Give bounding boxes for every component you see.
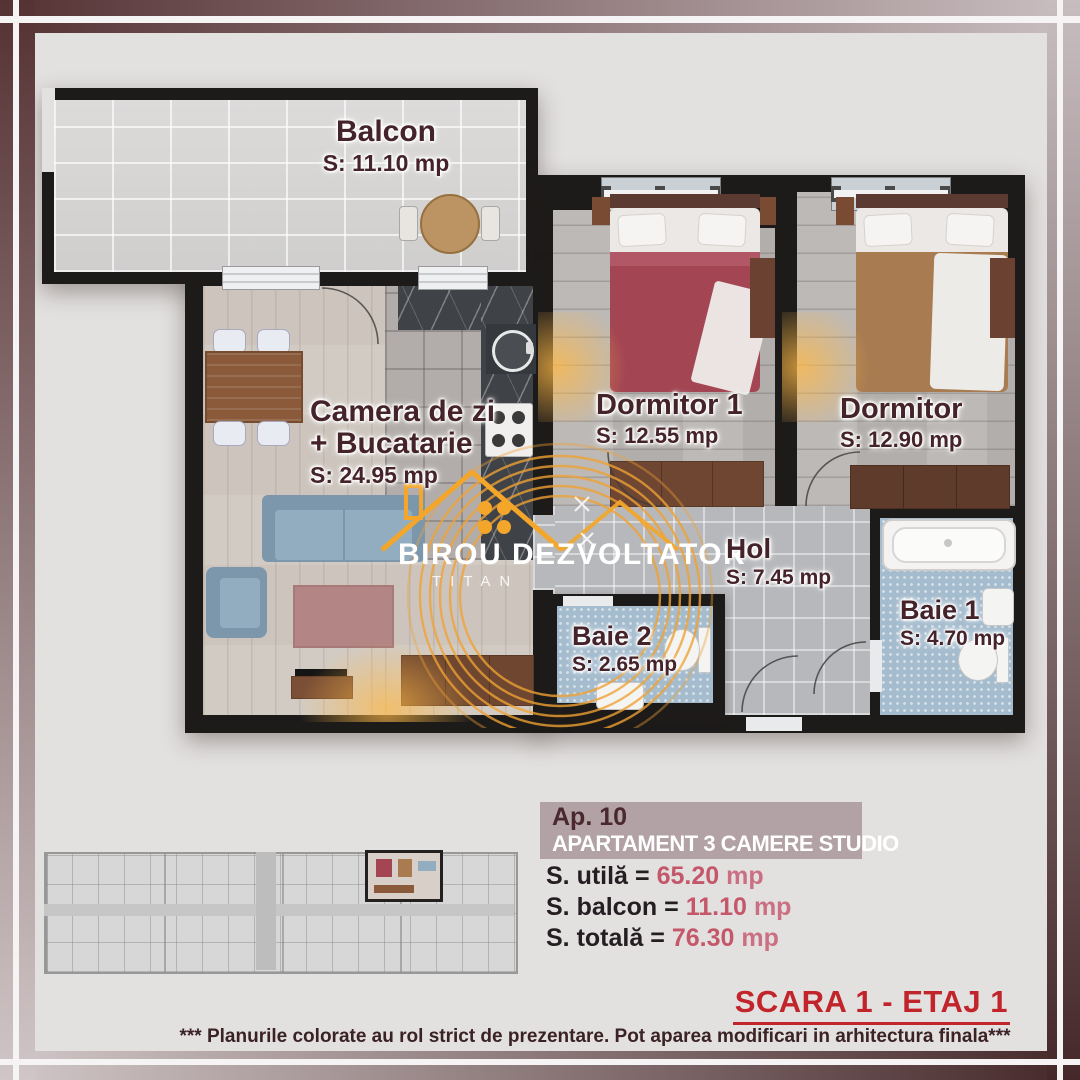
dresser-divider xyxy=(712,462,713,506)
apartment-info-band: Ap. 10 APARTAMENT 3 CAMERE STUDIO xyxy=(540,802,862,859)
overview-corridor xyxy=(44,904,514,916)
bed-dormitor1 xyxy=(610,194,760,392)
balcony-table xyxy=(420,194,480,254)
entrance-door-gap xyxy=(746,717,802,731)
room-area: S: 12.90 mp xyxy=(840,427,1030,453)
bed-dormitor2 xyxy=(856,194,1008,392)
sofa xyxy=(262,495,425,562)
balcony-door-1 xyxy=(222,266,320,290)
pillow xyxy=(863,213,913,247)
room-label-baie2: Baie 2 S: 2.65 mp xyxy=(572,622,722,677)
area-row-utila: S. utilă=65.20mp xyxy=(546,862,764,891)
dresser-divider xyxy=(661,462,662,506)
room-name: Baie 2 xyxy=(572,622,722,651)
room-area: S: 24.95 mp xyxy=(310,462,560,489)
tv-bench xyxy=(291,676,353,699)
room-label-dormitor2: Dormitor S: 12.90 mp xyxy=(840,394,1030,453)
bathroom-sink xyxy=(596,682,644,710)
sink-faucet xyxy=(526,342,533,354)
wardrobe xyxy=(990,258,1015,338)
wardrobe xyxy=(750,258,775,338)
pillow xyxy=(945,213,995,247)
dresser xyxy=(610,461,764,507)
overview-hl-furniture xyxy=(374,885,414,893)
disclaimer-text: *** Planurile colorate au rol strict de … xyxy=(150,1026,1040,1048)
frame-inset-line-left xyxy=(13,0,19,1080)
sideboard-divider xyxy=(445,656,446,705)
dresser-divider xyxy=(903,466,904,508)
room-name-line2: + Bucatarie xyxy=(310,428,560,460)
room-label-baie1: Baie 1 S: 4.70 mp xyxy=(900,596,1040,651)
rug xyxy=(293,585,394,648)
room-name: Baie 1 xyxy=(900,596,1040,625)
headboard xyxy=(610,194,760,208)
room-area: S: 11.10 mp xyxy=(296,150,476,177)
frame-bottom xyxy=(0,1051,1080,1080)
kitchen-sink xyxy=(486,324,536,374)
overview-stair-core xyxy=(256,852,276,970)
nightstand xyxy=(592,197,610,225)
dresser-divider xyxy=(956,466,957,508)
balcony-door-2 xyxy=(418,266,488,290)
room-area: S: 4.70 mp xyxy=(900,627,1040,651)
headboard xyxy=(856,194,1008,208)
living-hol-passage xyxy=(533,515,555,590)
armchair xyxy=(206,567,267,638)
overview-highlighted-apartment xyxy=(365,850,443,902)
building-overview xyxy=(42,846,522,982)
frame-inset-line-top xyxy=(0,16,1080,23)
pillow xyxy=(697,213,747,247)
room-name: Balcon xyxy=(296,116,476,148)
sideboard-divider xyxy=(489,656,490,705)
room-name: Dormitor xyxy=(840,394,1030,425)
room-name: Hol xyxy=(726,534,866,564)
room-name: Dormitor 1 xyxy=(596,390,796,421)
overview-hl-bed xyxy=(376,859,392,877)
frame-inset-line-bottom xyxy=(0,1059,1080,1065)
overview-hl-sofa xyxy=(418,861,436,871)
room-label-hol: Hol S: 7.45 mp xyxy=(726,534,866,590)
frame-right xyxy=(1047,0,1080,1080)
floor-plan-poster: BIROU DEZVOLTATOR TITAN Balcon S: 11.10 … xyxy=(0,0,1080,1080)
overview-hl-bed xyxy=(398,859,412,877)
dresser xyxy=(850,465,1010,509)
blanket-fold xyxy=(610,252,760,266)
room-area: S: 7.45 mp xyxy=(726,566,866,590)
bathtub xyxy=(882,519,1016,571)
room-name: Camera de zi xyxy=(310,396,560,428)
frame-inset-line-right xyxy=(1057,0,1063,1080)
dining-table xyxy=(205,351,303,423)
balcony-chair-left xyxy=(399,206,418,241)
bathtub-drain xyxy=(944,539,952,547)
room-label-balcon: Balcon S: 11.10 mp xyxy=(296,116,476,177)
room-label-dormitor1: Dormitor 1 S: 12.55 mp xyxy=(596,390,796,449)
floor-title: SCARA 1 - ETAJ 1 xyxy=(733,984,1010,1025)
sofa-cushion-divider xyxy=(343,510,345,560)
dining-chair xyxy=(213,421,246,446)
apartment-type: APARTAMENT 3 CAMERE STUDIO xyxy=(552,831,899,857)
area-row-balcon: S. balcon=11.10mp xyxy=(546,893,791,922)
room-area: S: 12.55 mp xyxy=(596,423,796,449)
baie2-door-gap xyxy=(563,596,613,606)
pillow xyxy=(617,213,667,247)
nightstand xyxy=(760,197,776,225)
nightstand xyxy=(836,197,854,225)
dining-chair xyxy=(257,421,290,446)
sideboard xyxy=(401,655,534,706)
armchair-seat xyxy=(220,578,260,628)
room-area: S: 2.65 mp xyxy=(572,653,722,677)
balcony-chair-right xyxy=(481,206,500,241)
apartment-number: Ap. 10 xyxy=(552,804,627,831)
baie1-door-gap xyxy=(870,640,882,692)
room-label-camera: Camera de zi + Bucatarie S: 24.95 mp xyxy=(310,396,560,489)
area-row-totala: S. totală=76.30mp xyxy=(546,924,779,953)
tv xyxy=(295,669,347,676)
